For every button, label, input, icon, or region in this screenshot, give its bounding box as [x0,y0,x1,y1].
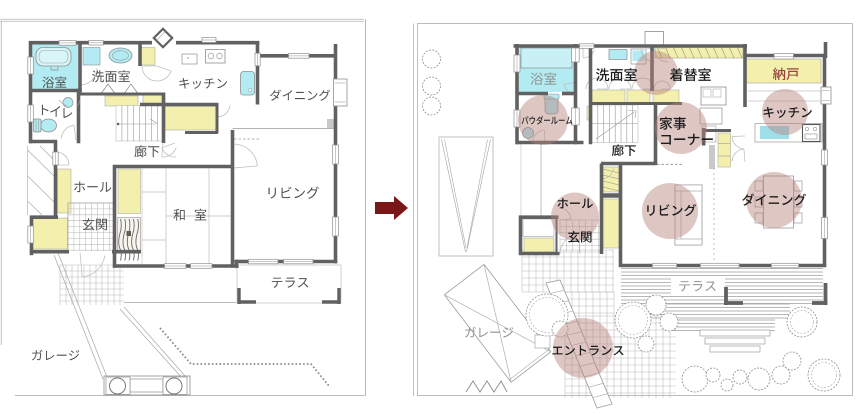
svg-text:*: * [187,57,189,63]
